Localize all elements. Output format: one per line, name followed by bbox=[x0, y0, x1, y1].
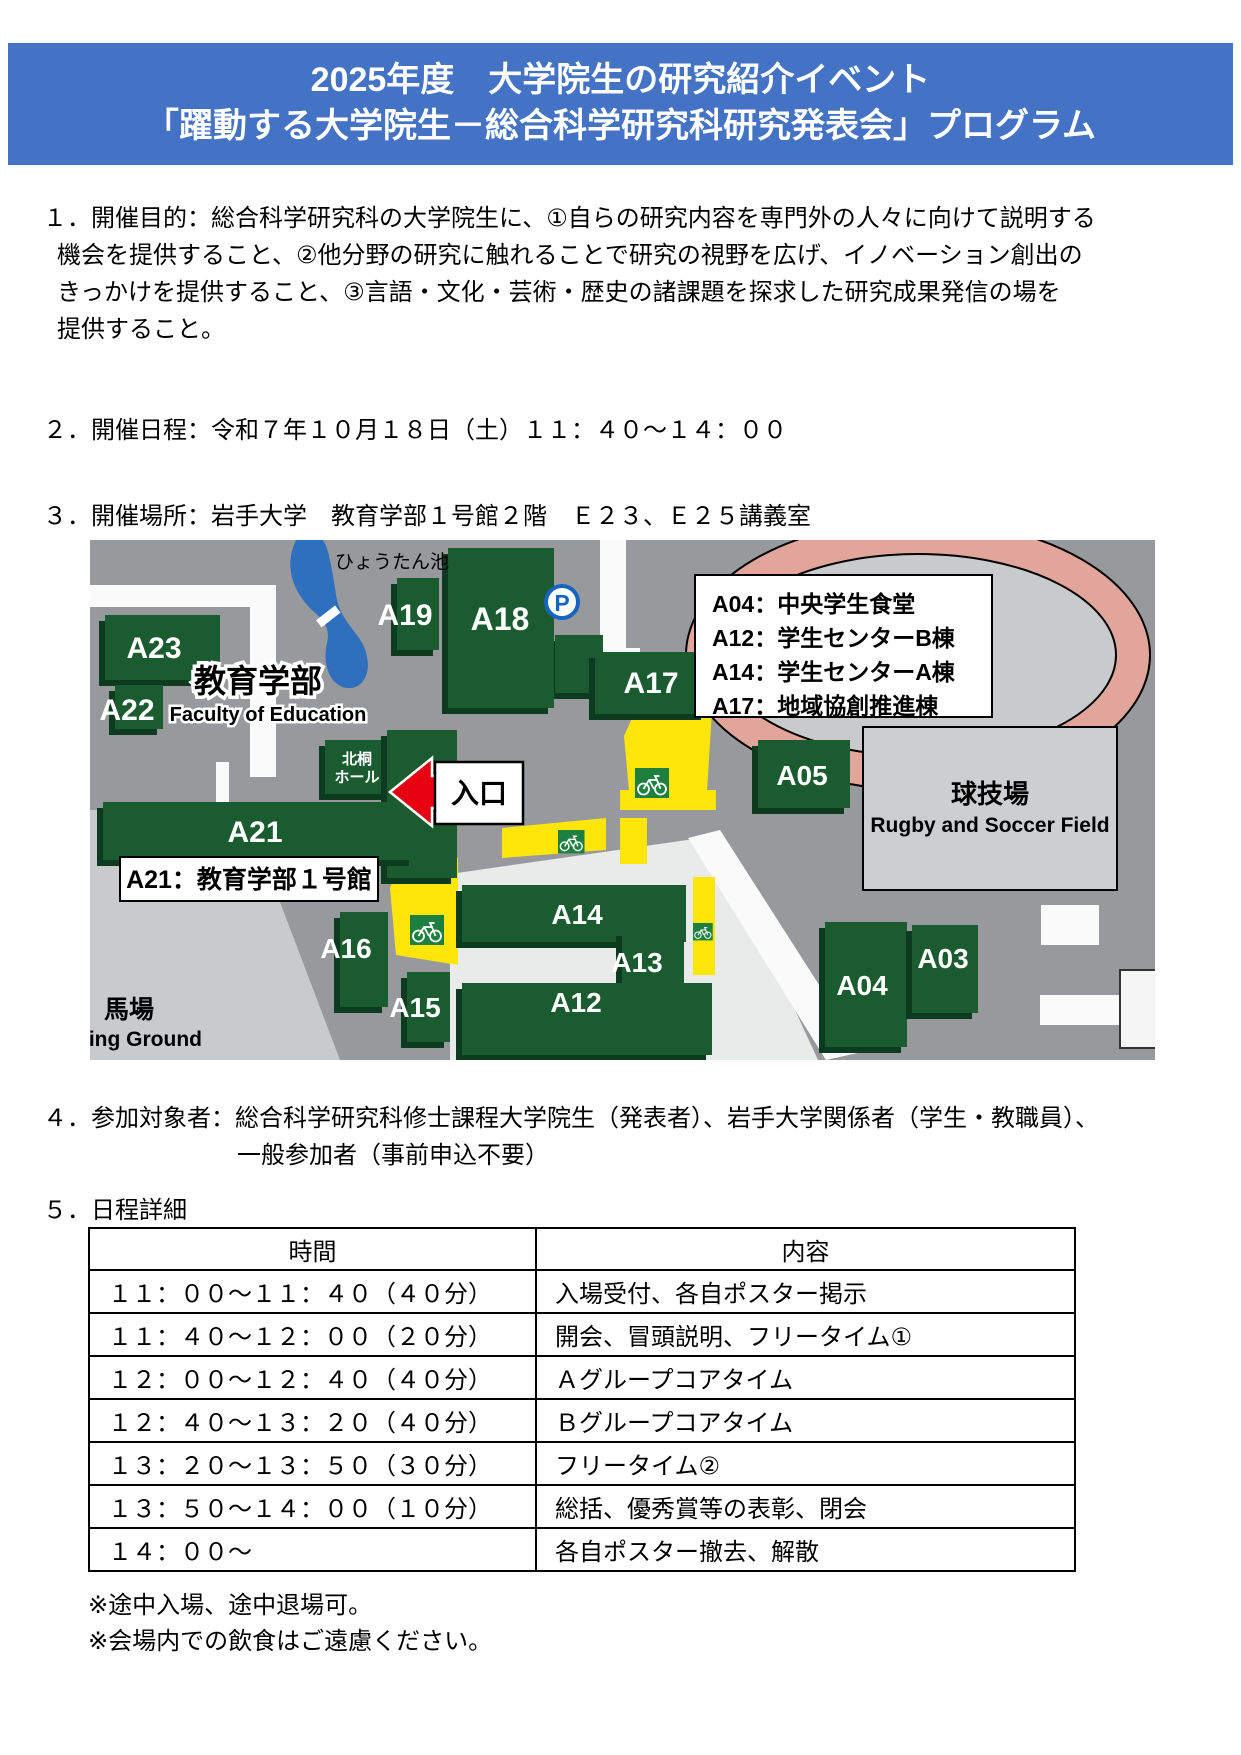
building-label-A04: A04 bbox=[836, 970, 888, 1001]
sports-field-label-en: Rugby and Soccer Field bbox=[870, 814, 1109, 837]
building-label-A23: A23 bbox=[126, 632, 181, 665]
title-line-2: 「躍動する大学院生－総合科学研究科研究発表会」プログラム bbox=[8, 103, 1233, 149]
table-row: １２：００～１２：４０（４０分）Ａグループコアタイム bbox=[89, 1356, 1075, 1399]
title-line-1: 2025年度 大学院生の研究紹介イベント bbox=[8, 57, 1233, 103]
purpose-line: １．開催目的：総合科学研究科の大学院生に、①自らの研究内容を専門外の人々に向けて… bbox=[43, 200, 1096, 237]
col-header-time: 時間 bbox=[89, 1228, 536, 1270]
svg-text:A21：教育学部１号館: A21：教育学部１号館 bbox=[126, 865, 372, 894]
bicycle-icon bbox=[558, 830, 585, 853]
content-cell: フリータイム② bbox=[536, 1442, 1075, 1485]
table-row: １２：４０～１３：２０（４０分）Ｂグループコアタイム bbox=[89, 1399, 1075, 1442]
section-participants-line1: ４．参加対象者：総合科学研究科修士課程大学院生（発表者）、岩手大学関係者（学生・… bbox=[43, 1100, 1099, 1137]
building-label-A03: A03 bbox=[917, 943, 968, 974]
bicycle-icon bbox=[693, 923, 713, 940]
bicycle-icon bbox=[635, 768, 669, 798]
time-cell: １２：４０～１３：２０（４０分） bbox=[89, 1399, 536, 1442]
a21-note-box: A21：教育学部１号館 bbox=[120, 857, 378, 901]
svg-text:P: P bbox=[554, 590, 569, 616]
pond-label: ひょうたん池 bbox=[335, 551, 449, 573]
building-label-A05: A05 bbox=[776, 760, 827, 791]
content-cell: Ｂグループコアタイム bbox=[536, 1399, 1075, 1442]
building-label-A16: A16 bbox=[320, 933, 371, 964]
building-label-A21: A21 bbox=[227, 816, 282, 849]
purpose-line: 機会を提供すること、②他分野の研究に触れることで研究の視野を広げ、イノベーション… bbox=[43, 237, 1096, 274]
entrance-box: 入口 bbox=[435, 762, 523, 824]
time-cell: １１：００～１１：４０（４０分） bbox=[89, 1270, 536, 1313]
legend-line: A14：学生センターA棟 bbox=[712, 659, 956, 685]
table-row: １４：００～各自ポスター撤去、解散 bbox=[89, 1528, 1075, 1571]
sports-field-label-ja: 球技場 bbox=[951, 779, 1029, 809]
content-cell: 開会、冒頭説明、フリータイム① bbox=[536, 1313, 1075, 1356]
time-cell: １３：５０～１４：００（１０分） bbox=[89, 1485, 536, 1528]
baba-label-ja: 馬場 bbox=[104, 996, 154, 1024]
table-row: １３：２０～１３：５０（３０分）フリータイム② bbox=[89, 1442, 1075, 1485]
program-page: 2025年度 大学院生の研究紹介イベント 「躍動する大学院生－総合科学研究科研究… bbox=[0, 0, 1241, 1755]
time-cell: １４：００～ bbox=[89, 1528, 536, 1571]
footnote-line: ※途中入場、途中退場可。 bbox=[88, 1588, 492, 1624]
svg-text:入口: 入口 bbox=[451, 778, 507, 809]
section-date: ２．開催日程：令和７年１０月１８日（土）１１：４０～１４：００ bbox=[43, 412, 787, 449]
map-legend: A04：中央学生食堂 A12：学生センターB棟 A14：学生センターA棟 A17… bbox=[695, 575, 992, 719]
parking-icon: P bbox=[546, 586, 578, 618]
table-row: １１：００～１１：４０（４０分）入場受付、各自ポスター掲示 bbox=[89, 1270, 1075, 1313]
building-label-A12: A12 bbox=[550, 987, 601, 1018]
hokuto-hall-label: 北桐 bbox=[342, 750, 372, 768]
building-label-A18: A18 bbox=[471, 601, 530, 637]
footnote-line: ※会場内での飲食はご遠慮ください。 bbox=[88, 1624, 492, 1660]
building-label-A13: A13 bbox=[611, 947, 662, 978]
baba-label-en: ding Ground bbox=[90, 1028, 202, 1051]
faculty-label-ja: 教育学部 bbox=[194, 663, 322, 699]
purpose-line: きっかけを提供すること、③言語・文化・芸術・歴史の諸課題を探求した研究成果発信の… bbox=[43, 274, 1096, 311]
partial-building bbox=[1120, 970, 1155, 1048]
content-cell: 入場受付、各自ポスター掲示 bbox=[536, 1270, 1075, 1313]
road bbox=[1041, 905, 1099, 945]
footnotes: ※途中入場、途中退場可。 ※会場内での飲食はご遠慮ください。 bbox=[88, 1588, 492, 1660]
table-row: １１：４０～１２：００（２０分）開会、冒頭説明、フリータイム① bbox=[89, 1313, 1075, 1356]
building-label-A22: A22 bbox=[99, 694, 154, 727]
building-label-A15: A15 bbox=[389, 992, 440, 1023]
purpose-line: 提供すること。 bbox=[43, 311, 1096, 348]
time-cell: １３：２０～１３：５０（３０分） bbox=[89, 1442, 536, 1485]
road bbox=[600, 540, 626, 650]
section-purpose: １．開催目的：総合科学研究科の大学院生に、①自らの研究内容を専門外の人々に向けて… bbox=[43, 200, 1096, 348]
faculty-label-en: Faculty of Education bbox=[170, 704, 367, 726]
schedule-table: 時間 内容 １１：００～１１：４０（４０分）入場受付、各自ポスター掲示 １１：４… bbox=[88, 1227, 1076, 1572]
col-header-content: 内容 bbox=[536, 1228, 1075, 1270]
table-row: １３：５０～１４：００（１０分）総括、優秀賞等の表彰、閉会 bbox=[89, 1485, 1075, 1528]
bike-parking-area bbox=[620, 818, 647, 864]
page-title-banner: 2025年度 大学院生の研究紹介イベント 「躍動する大学院生－総合科学研究科研究… bbox=[8, 43, 1233, 165]
road bbox=[90, 585, 268, 607]
section-detail-heading: ５．日程詳細 bbox=[43, 1192, 187, 1229]
bicycle-icon bbox=[410, 915, 444, 945]
campus-map: 球技場 Rugby and Soccer Field A23A22A19A18A… bbox=[90, 540, 1155, 1060]
building-label-A14: A14 bbox=[551, 899, 603, 930]
time-cell: １１：４０～１２：００（２０分） bbox=[89, 1313, 536, 1356]
building-label-A17: A17 bbox=[623, 667, 678, 700]
legend-line: A17：地域協創推進棟 bbox=[712, 693, 939, 719]
hokuto-hall-label: ホール bbox=[334, 769, 379, 786]
section-participants-line2: 一般参加者（事前申込不要） bbox=[237, 1137, 549, 1174]
content-cell: Ａグループコアタイム bbox=[536, 1356, 1075, 1399]
building-label-A19: A19 bbox=[377, 599, 432, 632]
content-cell: 総括、優秀賞等の表彰、閉会 bbox=[536, 1485, 1075, 1528]
content-cell: 各自ポスター撤去、解散 bbox=[536, 1528, 1075, 1571]
table-header-row: 時間 内容 bbox=[89, 1228, 1075, 1270]
legend-line: A04：中央学生食堂 bbox=[712, 591, 915, 617]
time-cell: １２：００～１２：４０（４０分） bbox=[89, 1356, 536, 1399]
legend-line: A12：学生センターB棟 bbox=[712, 625, 956, 651]
section-place: ３．開催場所：岩手大学 教育学部１号館２階 Ｅ２３、Ｅ２５講義室 bbox=[43, 498, 811, 535]
